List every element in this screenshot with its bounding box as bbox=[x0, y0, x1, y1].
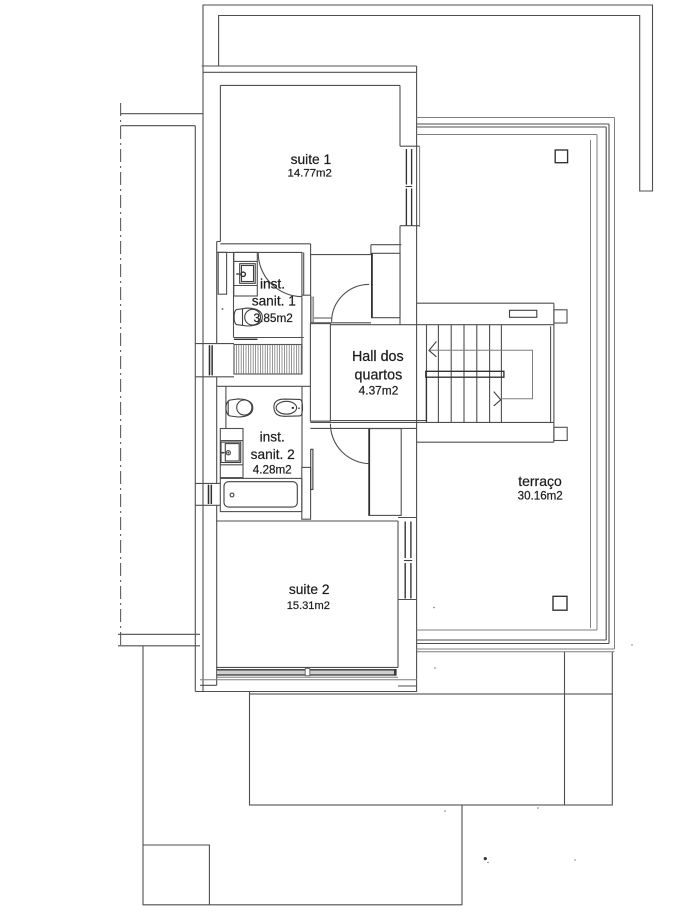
svg-text:suite 1: suite 1 bbox=[291, 152, 332, 167]
svg-text:quartos: quartos bbox=[355, 367, 403, 383]
svg-text:4.28m2: 4.28m2 bbox=[253, 463, 292, 476]
svg-text:sanit. 2: sanit. 2 bbox=[251, 447, 295, 462]
svg-text:4.37m2: 4.37m2 bbox=[359, 384, 399, 398]
svg-text:inst.: inst. bbox=[260, 430, 285, 445]
svg-text:sanit. 1: sanit. 1 bbox=[252, 294, 296, 309]
svg-text:14.77m2: 14.77m2 bbox=[288, 167, 332, 179]
svg-text:inst.: inst. bbox=[260, 277, 285, 292]
svg-text:15.31m2: 15.31m2 bbox=[287, 600, 330, 612]
svg-text:3.85m2: 3.85m2 bbox=[254, 311, 293, 325]
svg-text:suite 2: suite 2 bbox=[289, 582, 330, 597]
svg-text:30.16m2: 30.16m2 bbox=[518, 489, 563, 502]
svg-text:terraço: terraço bbox=[518, 473, 562, 489]
svg-text:Hall dos: Hall dos bbox=[352, 349, 404, 365]
